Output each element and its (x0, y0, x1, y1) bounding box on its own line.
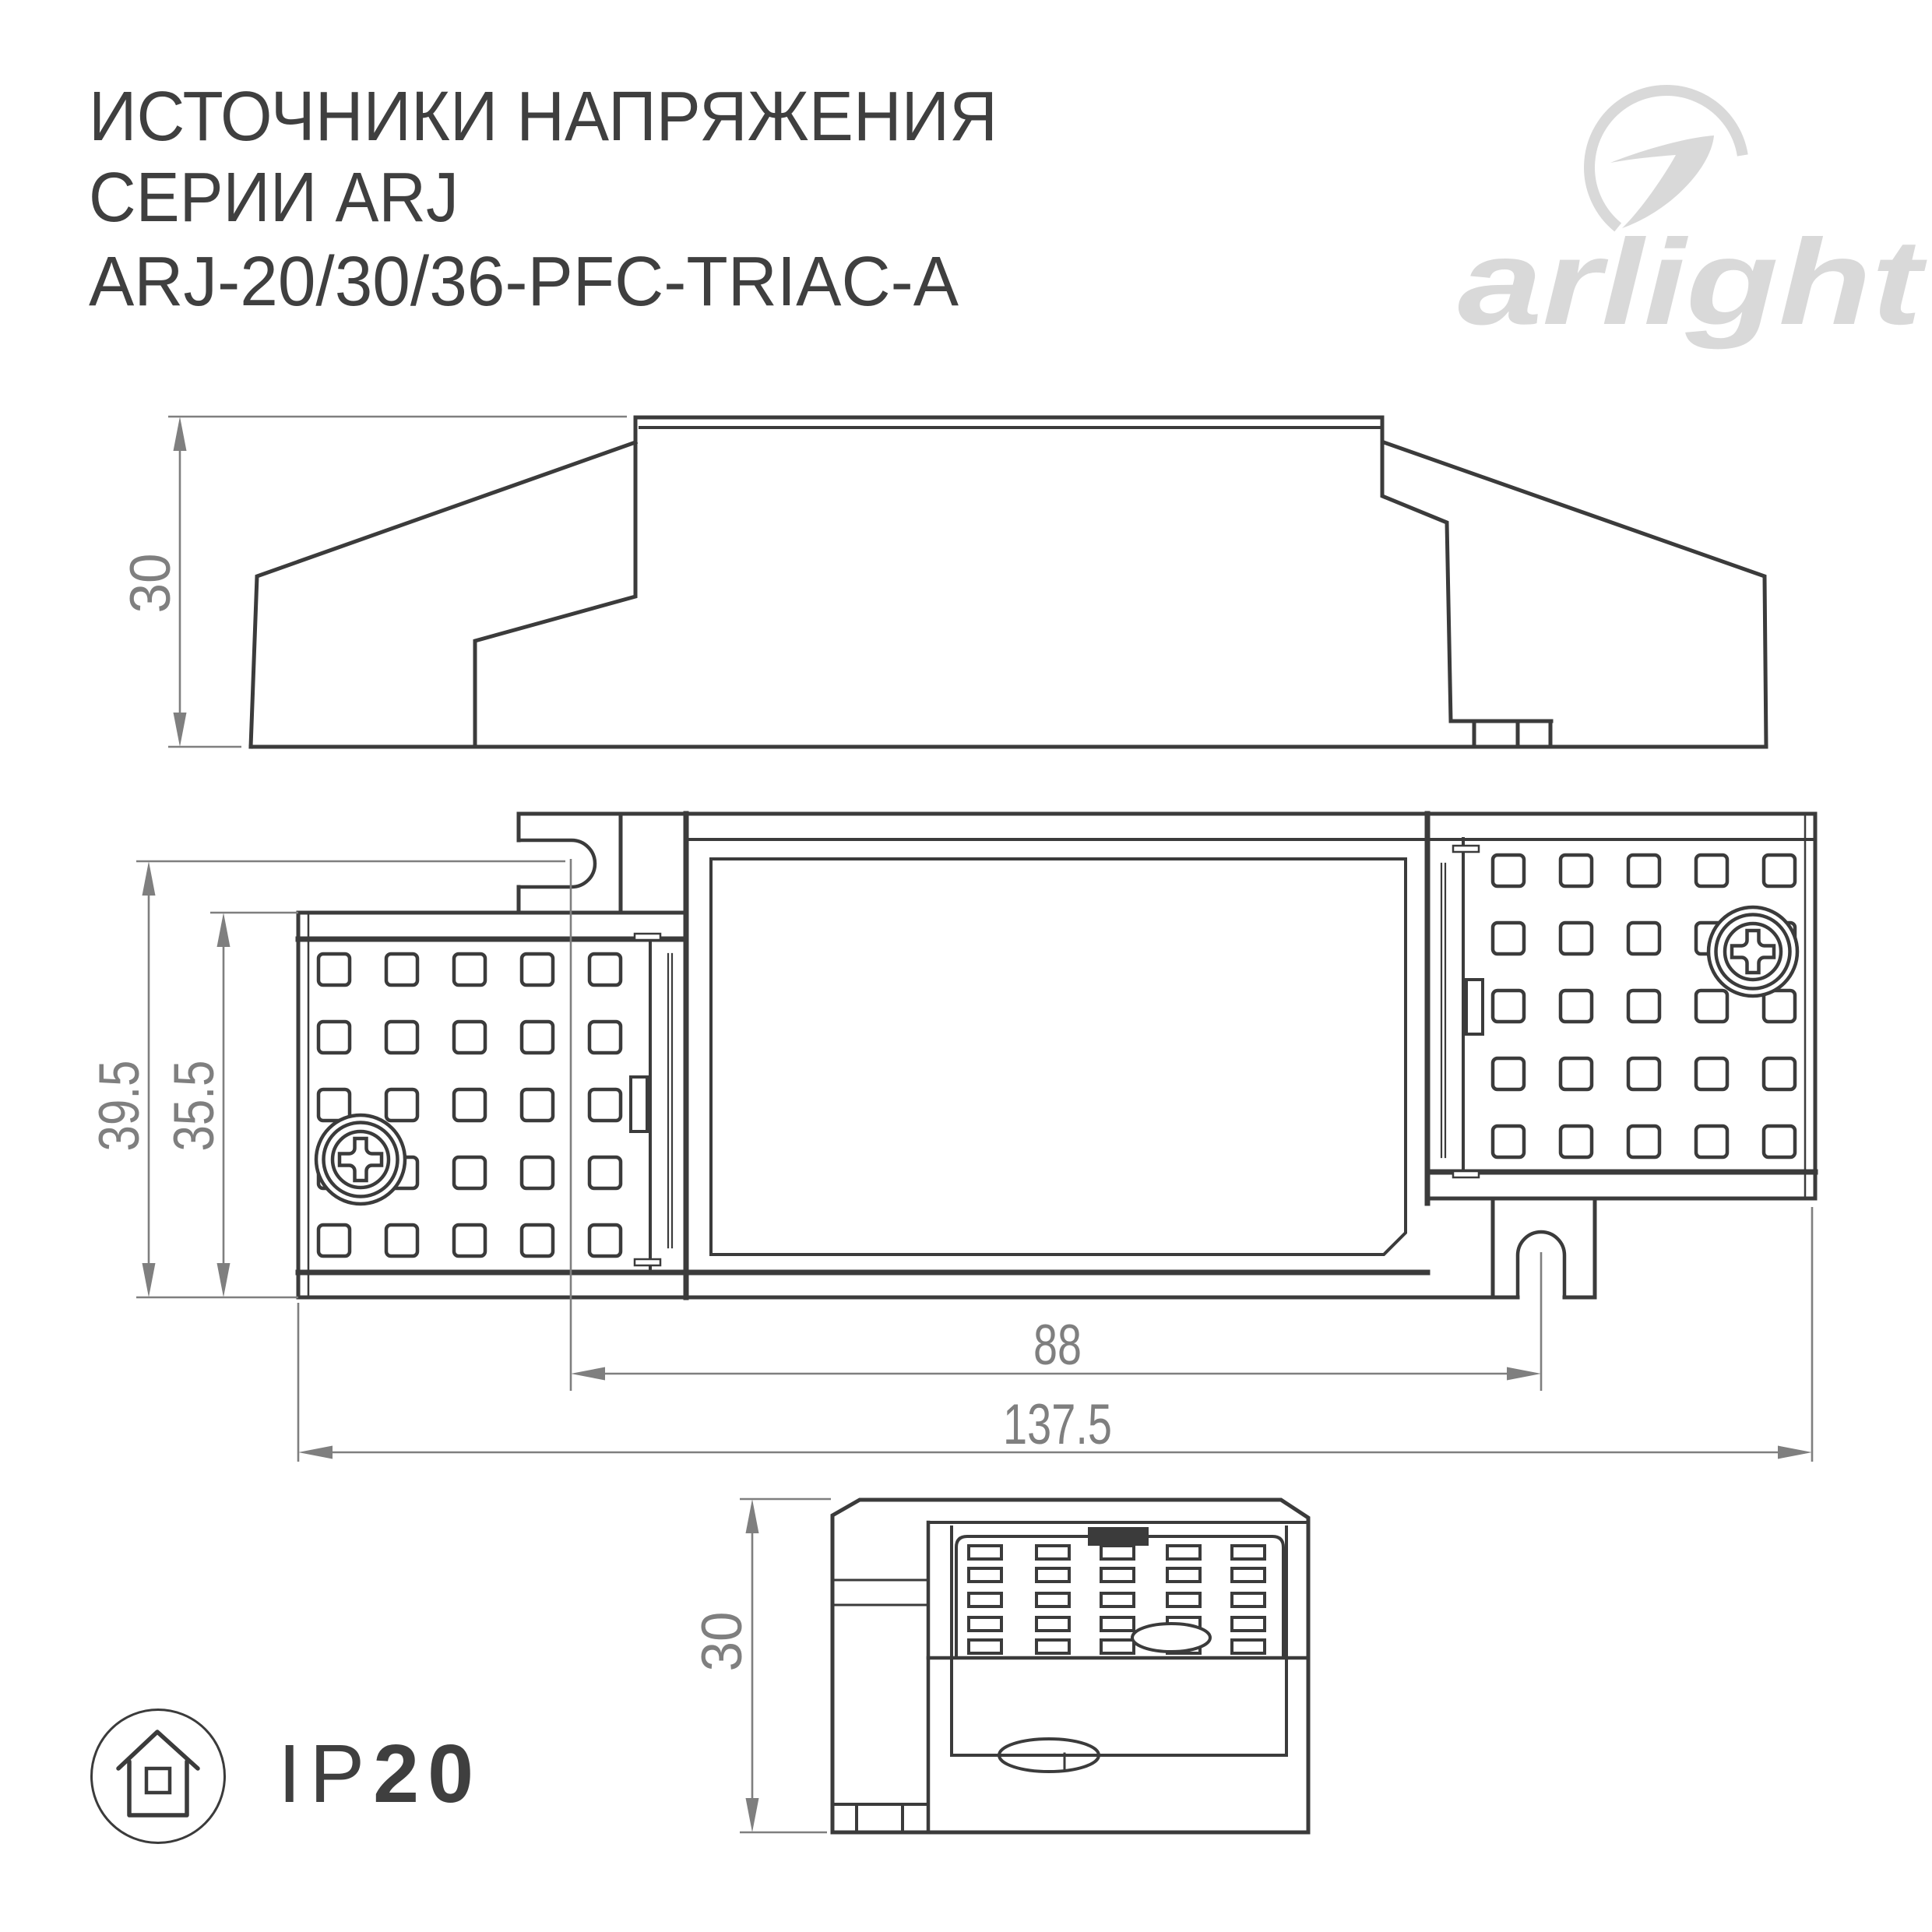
svg-text:СЕРИИ ARJ: СЕРИИ ARJ (89, 159, 459, 237)
svg-text:30: 30 (691, 1612, 754, 1672)
svg-text:30: 30 (119, 554, 182, 614)
svg-text:ИСТОЧНИКИ НАПРЯЖЕНИЯ: ИСТОЧНИКИ НАПРЯЖЕНИЯ (89, 78, 998, 156)
svg-text:ARJ-20/30/36-PFC-TRIAC-A: ARJ-20/30/36-PFC-TRIAC-A (89, 243, 959, 321)
svg-text:39.5: 39.5 (88, 1061, 151, 1152)
svg-text:arlight: arlight (1458, 215, 1928, 350)
svg-text:137.5: 137.5 (1003, 1393, 1112, 1456)
svg-text:35.5: 35.5 (163, 1061, 226, 1152)
svg-text:IP20: IP20 (278, 1728, 482, 1820)
svg-text:88: 88 (1033, 1314, 1082, 1377)
